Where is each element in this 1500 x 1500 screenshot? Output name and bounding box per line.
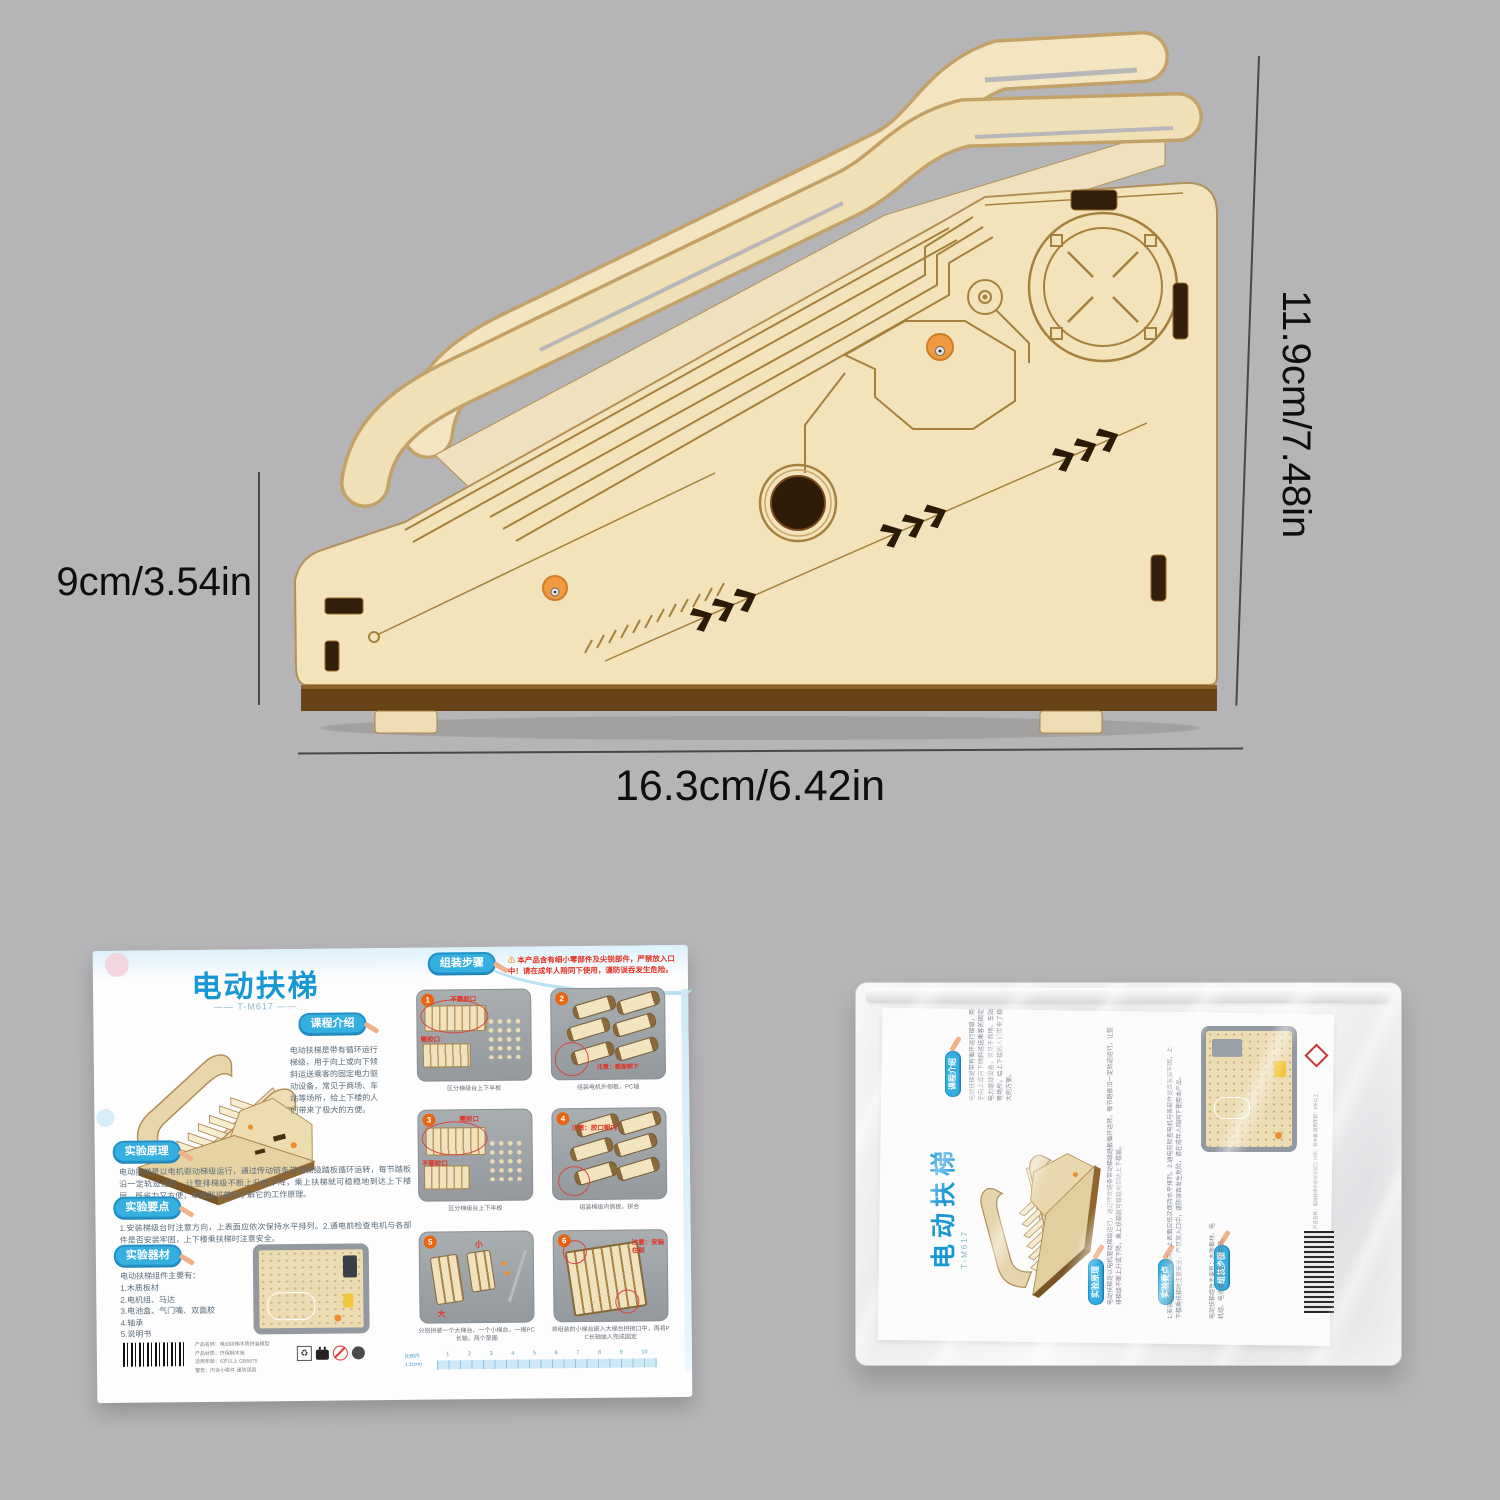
ruler-label: 1:1(cm) xyxy=(405,1361,435,1369)
points-text: 1.安装梯级台时注意方向，上表面应依次保持水平排列。2.通电前检查电机与各部件是… xyxy=(119,1220,411,1247)
step-panel-5: 5 大 小 xyxy=(419,1231,535,1324)
step-caption-1: 区分梯级台上下半板 xyxy=(414,1085,534,1095)
dim-line-right xyxy=(1235,56,1260,706)
badge-points: 实验要点 xyxy=(113,1196,181,1219)
badge-principle: 实验原理 xyxy=(113,1140,181,1163)
certification-dot-icon xyxy=(352,1347,365,1360)
product-screenshot: 9cm/3.54in 16.3cm/6.42in 11.9cm/7.48in 电… xyxy=(0,0,1500,1500)
step-panel-3: 3 需胶口 不要胶口 xyxy=(417,1109,533,1202)
badge-materials: 实验器材 xyxy=(114,1244,182,1267)
step-note: 不要胶口 xyxy=(450,993,476,1003)
step-caption-5: 分别拼装一个大梯台、一个小梯台，一根PC长轴，两个垫圈 xyxy=(417,1326,537,1344)
cut-outline xyxy=(267,1292,315,1321)
prohibition-icon xyxy=(333,1346,348,1361)
step-note: 需胶口 xyxy=(459,1113,479,1123)
step-note: 大 xyxy=(437,1308,445,1319)
step-note: 注意：截面朝下 xyxy=(597,1061,639,1070)
step-panel-1: 1 不要胶口 需胶口 xyxy=(416,989,532,1082)
pink-blob xyxy=(105,953,129,977)
axle-hole xyxy=(760,465,836,541)
step-note: 注意：安装在前 xyxy=(632,1239,666,1256)
bag-crinkle-highlight xyxy=(856,983,1401,1365)
step-caption-4: 组装梯级内侧板，拼合 xyxy=(549,1203,669,1213)
step-panel-2: 2 注意：截面朝下 xyxy=(550,987,666,1080)
step-number: 5 xyxy=(424,1236,437,1249)
barcode xyxy=(123,1342,187,1367)
dark-part xyxy=(343,1255,357,1277)
plug-icon xyxy=(316,1349,329,1359)
step-note: 不要胶口 xyxy=(422,1157,448,1167)
orange-part xyxy=(334,1315,341,1322)
step-number: 2 xyxy=(555,992,568,1005)
badge-assembly: 组装步骤 xyxy=(428,952,496,975)
sheet-right-strip xyxy=(681,989,692,1371)
barcode-text-line: 警告：内含小零件 谨防误吞 xyxy=(195,1366,270,1375)
step-panel-6: 6 注意：安装在前 xyxy=(553,1229,669,1322)
recycle-box-icon: ♻ xyxy=(297,1346,312,1361)
step-note: 注意：胶口朝内 xyxy=(571,1122,617,1132)
step-caption-2: 组装电机外侧板，PC轴 xyxy=(548,1083,668,1093)
manual-model-number: —— T-M617 —— xyxy=(148,1000,363,1012)
pc-axle xyxy=(508,1250,527,1302)
dim-label-left: 9cm/3.54in xyxy=(40,560,252,605)
step-note: 小 xyxy=(475,1239,483,1250)
barcode-text-line: 产品名称：电动扶梯木质拼装模型 xyxy=(195,1340,270,1349)
manual-title: 电动扶梯 xyxy=(148,960,363,1006)
step-number: 4 xyxy=(556,1112,569,1125)
step-panel-4: 4 注意：胶口朝内 xyxy=(551,1107,667,1200)
yellow-part xyxy=(343,1293,353,1307)
printed-ruler: 比例尺 1:1(cm) 12345678910 xyxy=(405,1349,657,1376)
assembly-warning-text: 本产品含有细小零部件及尖锐部件，严禁放入口中！请在成年人陪同下使用，谨防误吞发生… xyxy=(508,954,675,976)
instruction-sheet: 电动扶梯 —— T-M617 —— xyxy=(93,945,693,1403)
step-note: 需胶口 xyxy=(421,1033,441,1043)
badge-intro: 课程介绍 xyxy=(298,1012,366,1035)
warning-triangle-icon: ⚠ xyxy=(508,956,516,965)
material-item: 5.说明书 xyxy=(121,1328,249,1341)
intro-text: 电动扶梯是带有循环运行梯级，用于向上或向下倾斜运送乘客的固定电力驱动设备，常见于… xyxy=(290,1044,379,1117)
dim-label-right: 11.9cm/7.48in xyxy=(1273,290,1318,538)
step-caption-6: 将组装的小梯台嵌入大梯台拼接口中，再将PC长轴插入完成固定 xyxy=(551,1325,671,1343)
dim-line-left xyxy=(258,472,260,705)
step-caption-3: 区分梯级台上下半板 xyxy=(415,1205,535,1215)
blue-blob xyxy=(96,1109,114,1127)
escalator-model-photo xyxy=(285,25,1235,745)
packaged-kit: 电动扶梯 T-M617 课程介绍 实验原理 实验要点 组装步骤 电动扶梯是带有循… xyxy=(855,982,1402,1366)
parts-board-photo xyxy=(253,1243,370,1334)
dim-line-bottom xyxy=(298,748,1243,755)
dim-label-bottom: 16.3cm/6.42in xyxy=(450,762,1050,811)
